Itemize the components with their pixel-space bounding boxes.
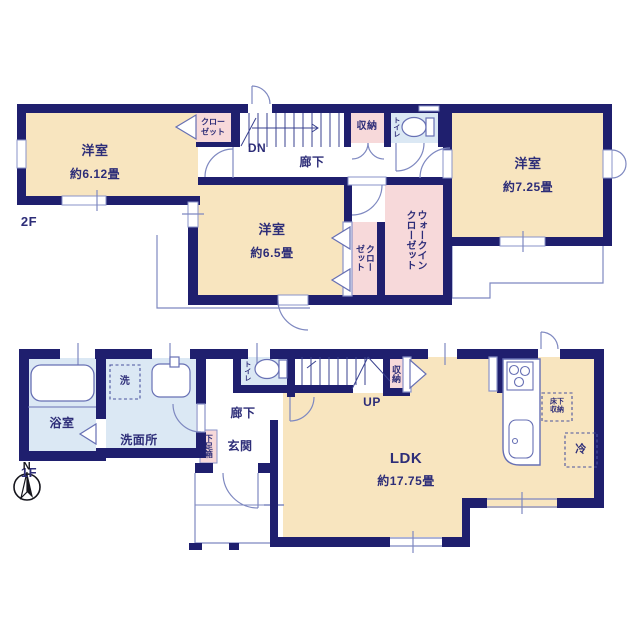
compass-north-label: N [23,460,31,473]
toilet-icon-1f [255,360,287,379]
room-label-bedroom725: 洋室 [514,156,541,172]
room-label-bedroom612: 洋室 [81,143,108,159]
floor-label-2f: 2F [21,214,37,230]
toilet-label-2f: トイレ [392,117,400,138]
room-label-entrance: 玄関 [227,439,252,453]
room-label-washroom: 洗面所 [120,433,158,447]
shoe-box-label: 下足箱 [204,434,213,458]
fridge-label: 冷 [575,443,587,456]
room-label-walk-in-closet: ウォークイン クローゼット [404,210,426,270]
stairs-down-label: DN [248,141,266,155]
room-label-closet-mid-2f: クロー ゼット [354,245,374,272]
storage-label-1f: 収納 [390,365,400,383]
floorplan-graphics [0,0,640,640]
room-size-ldk: 約17.75畳 [377,474,435,488]
room-label-bath: 浴室 [49,416,74,430]
toilet-label-1f: トイレ [243,361,251,382]
bathtub-icon [28,365,96,407]
kitchen-sink-icon [509,420,533,458]
storage-label-2f: 収納 [357,121,378,133]
underfloor-storage-label: 床下 収納 [550,399,564,416]
stove-icon [507,362,533,390]
hallway-label-1f: 廊下 [230,406,255,420]
room-label-ldk: LDK [390,450,422,468]
toilet-icon-2f [402,118,434,137]
floorplan-page: 洋室 約6.12畳 クロー ゼット DN 廊下 収納 トイレ 洋室 約7.25畳… [0,0,640,640]
room-size-bedroom612: 約6.12畳 [70,167,120,181]
stairs-up-label: UP [363,395,381,409]
room-size-bedroom65: 約6.5畳 [250,246,293,260]
room-label-closet-top-2f: クロー ゼット [201,117,225,136]
hallway-label-2f: 廊下 [299,155,324,169]
room-label-bedroom65: 洋室 [258,222,285,238]
room-size-bedroom725: 約7.25畳 [503,180,553,194]
washer-label: 洗 [120,376,131,388]
